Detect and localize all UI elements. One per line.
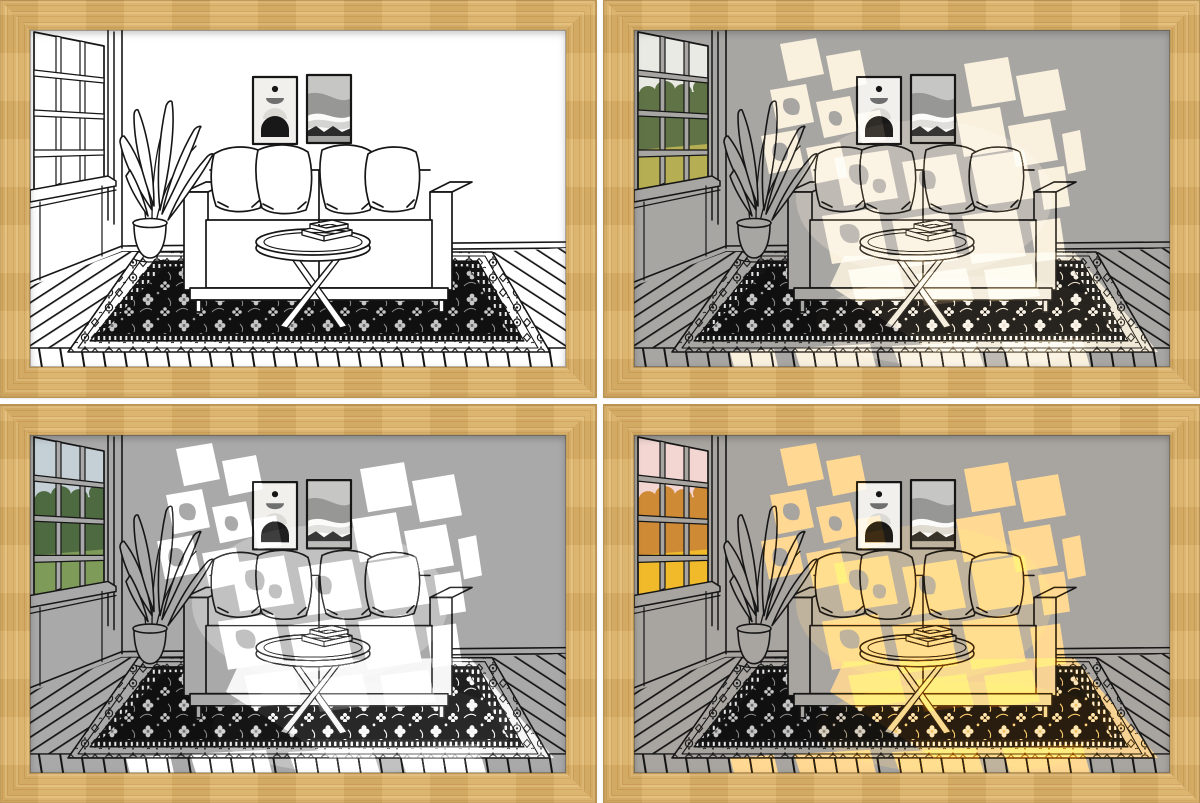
frame-left (0, 0, 30, 397)
framed-light-painting-3 (0, 405, 596, 803)
framed-light-painting-2 (604, 0, 1200, 397)
living-room-line-art (30, 435, 566, 773)
artwork-cool-daylight (30, 435, 566, 773)
frame-bottom (604, 367, 1200, 397)
artwork-warm-daylight (634, 30, 1170, 367)
window-view (636, 80, 710, 194)
living-room-line-art (634, 435, 1170, 773)
frame-bottom (0, 773, 596, 803)
artwork-line-art (30, 30, 566, 367)
living-room-line-art (634, 30, 1170, 367)
artwork-sunset-gold (634, 435, 1170, 773)
frame-top (604, 405, 1200, 435)
frame-left (0, 405, 30, 803)
frame-bottom (604, 773, 1200, 803)
window-view (32, 80, 106, 194)
window-view (636, 485, 710, 599)
framed-light-painting-1 (0, 0, 596, 397)
living-room-line-art (30, 30, 566, 367)
frame-left (604, 405, 634, 803)
frame-bottom (0, 367, 596, 397)
frame-right (566, 0, 596, 397)
product-grid (0, 0, 1200, 803)
frame-top (0, 0, 596, 30)
framed-light-painting-4 (604, 405, 1200, 803)
frame-right (1170, 0, 1200, 397)
frame-left (604, 0, 634, 397)
window-view (32, 485, 106, 599)
frame-right (1170, 405, 1200, 803)
frame-right (566, 405, 596, 803)
frame-top (604, 0, 1200, 30)
frame-top (0, 405, 596, 435)
